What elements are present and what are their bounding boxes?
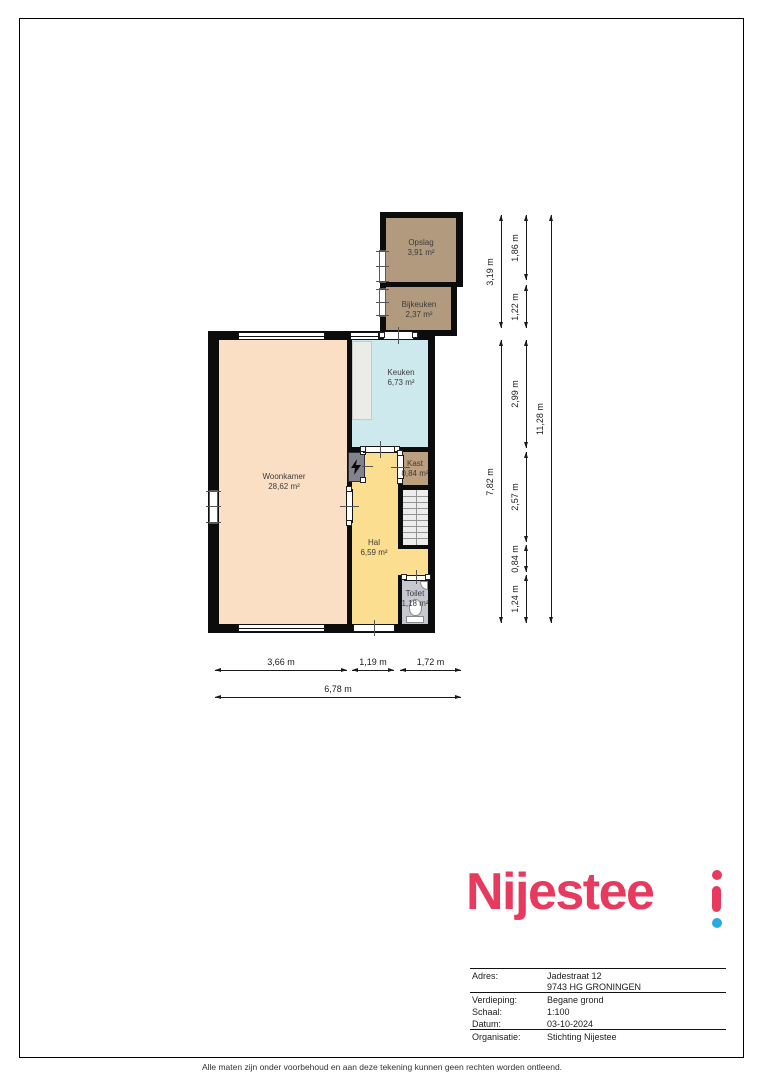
- window-keuken-top: [350, 332, 379, 340]
- room-area: 28,62 m²: [234, 482, 334, 492]
- dim-0-84: 0,84 m: [526, 545, 527, 572]
- table-rule: [470, 992, 726, 993]
- label-verdieping: Verdieping:: [472, 995, 517, 1005]
- value-organisatie: Stichting Nijestee: [547, 1032, 617, 1042]
- door-post: [397, 478, 403, 484]
- room-name: Kast: [365, 459, 465, 469]
- dim-label: 11,28 m: [535, 379, 547, 459]
- dim-7-82: 7,82 m: [501, 340, 502, 623]
- room-area: 3,91 m²: [371, 248, 471, 258]
- dim-1-22: 1,22 m: [526, 285, 527, 328]
- logo-wordmark: Nijestee: [466, 866, 653, 918]
- dim-label: 1,19 m: [352, 657, 394, 667]
- door-post: [346, 486, 352, 492]
- page: Opslag 3,91 m² Bijkeuken 2,37 m² Keuken …: [0, 0, 764, 1080]
- door-tick: [380, 441, 381, 458]
- door-tick: [376, 266, 389, 267]
- room-label-opslag: Opslag 3,91 m²: [371, 238, 471, 257]
- door-tick: [340, 506, 359, 507]
- dim-label: 2,99 m: [510, 354, 522, 434]
- door-post: [346, 520, 352, 526]
- dim-1-19: 1,19 m: [352, 670, 394, 671]
- door-post: [360, 446, 366, 452]
- door-tick: [376, 281, 389, 282]
- dim-label: 1,72 m: [400, 657, 461, 667]
- logo-i-stem-icon: [712, 886, 721, 912]
- dim-11-28: 11,28 m: [551, 215, 552, 623]
- value-adres-line1: Jadestraat 12: [547, 971, 602, 981]
- door-post: [379, 332, 385, 338]
- window-woonkamer-bottom: [238, 624, 325, 632]
- dim-2-99: 2,99 m: [526, 340, 527, 448]
- room-name: Woonkamer: [234, 472, 334, 482]
- room-area: 6,73 m²: [351, 378, 451, 388]
- room-area: 1,18 m²: [365, 599, 465, 609]
- logo-i-dot-icon: [712, 870, 722, 880]
- dim-label: 6,78 m: [215, 684, 461, 694]
- dim-2-57: 2,57 m: [526, 452, 527, 542]
- room-name: Keuken: [351, 368, 451, 378]
- room-label-woonkamer: Woonkamer 28,62 m²: [234, 472, 334, 491]
- room-name: Hal: [324, 538, 424, 548]
- lightning-bolt-icon: [351, 459, 361, 475]
- room-label-bijkeuken: Bijkeuken 2,37 m²: [369, 300, 469, 319]
- front-door-tick: [374, 620, 375, 636]
- value-verdieping: Begane grond: [547, 995, 604, 1005]
- door-tick: [398, 327, 399, 344]
- table-rule: [470, 1029, 726, 1030]
- window-woonkamer-top: [238, 332, 325, 340]
- toilet-tank: [406, 616, 424, 623]
- dim-1-86: 1,86 m: [526, 215, 527, 280]
- dim-label: 1,24 m: [510, 559, 522, 639]
- window-woonkamer-left: [209, 490, 218, 524]
- room-label-keuken: Keuken 6,73 m²: [351, 368, 451, 387]
- label-schaal: Schaal:: [472, 1007, 502, 1017]
- room-area: 2,37 m²: [369, 310, 469, 320]
- dim-label: 1,22 m: [510, 267, 522, 347]
- door-post: [425, 574, 431, 580]
- dim-label: 3,66 m: [215, 657, 347, 667]
- door-tick: [416, 570, 417, 584]
- label-datum: Datum:: [472, 1019, 501, 1029]
- window-tick: [206, 491, 221, 492]
- window-tick: [206, 506, 221, 507]
- dim-label: 7,82 m: [485, 442, 497, 522]
- footer-disclaimer: Alle maten zijn onder voorbehoud en aan …: [19, 1062, 745, 1072]
- value-adres-line2: 9743 HG GRONINGEN: [547, 982, 641, 992]
- dim-1-72: 1,72 m: [400, 670, 461, 671]
- dim-3-66: 3,66 m: [215, 670, 347, 671]
- room-area: 0,84 m²: [365, 469, 465, 479]
- room-label-hal: Hal 6,59 m²: [324, 538, 424, 557]
- dim-1-24: 1,24 m: [526, 575, 527, 623]
- value-datum: 03-10-2024: [547, 1019, 593, 1029]
- door-post: [397, 450, 403, 456]
- floorplan: Opslag 3,91 m² Bijkeuken 2,37 m² Keuken …: [0, 0, 764, 764]
- room-area: 6,59 m²: [324, 548, 424, 558]
- staircase: [403, 490, 428, 545]
- door-tick: [376, 289, 389, 290]
- room-name: Toilet: [365, 589, 465, 599]
- label-adres: Adres:: [472, 971, 498, 981]
- room-label-toilet: Toilet 1,18 m²: [365, 589, 465, 608]
- dim-6-78: 6,78 m: [215, 697, 461, 698]
- dim-label: 3,19 m: [485, 232, 497, 312]
- dim-3-19: 3,19 m: [501, 215, 502, 328]
- logo-blue-dot-icon: [712, 918, 722, 928]
- room-label-kast: Kast 0,84 m²: [365, 459, 465, 478]
- door-post: [401, 574, 407, 580]
- room-name: Bijkeuken: [369, 300, 469, 310]
- table-rule: [470, 968, 726, 969]
- value-schaal: 1:100: [547, 1007, 570, 1017]
- label-organisatie: Organisatie:: [472, 1032, 521, 1042]
- window-tick: [206, 522, 221, 523]
- door-post: [412, 332, 418, 338]
- room-name: Opslag: [371, 238, 471, 248]
